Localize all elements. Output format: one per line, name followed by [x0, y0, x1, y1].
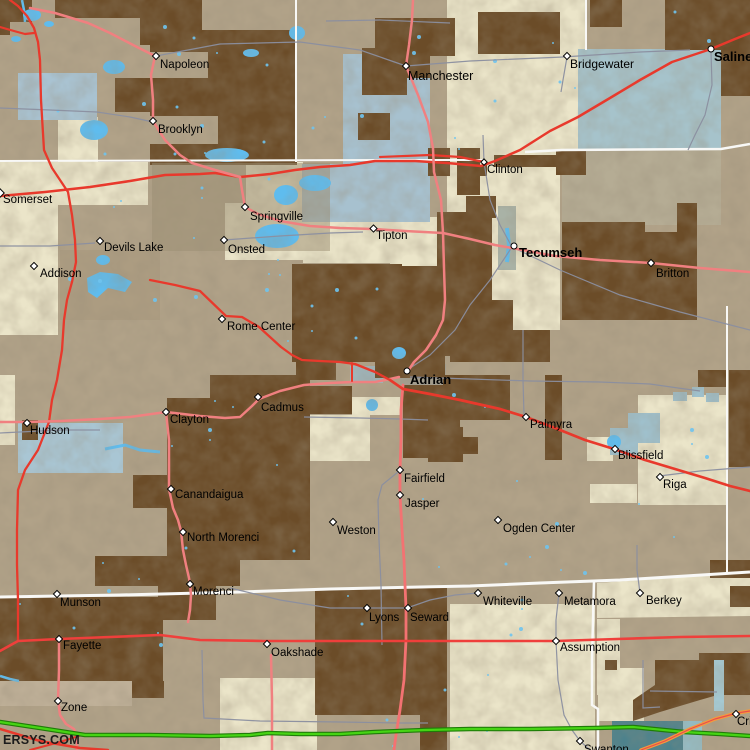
svg-text:Adrian: Adrian — [410, 372, 451, 387]
svg-text:Manchester: Manchester — [408, 69, 473, 83]
svg-text:Britton: Britton — [656, 268, 689, 280]
svg-text:Onsted: Onsted — [228, 244, 265, 256]
svg-text:Addison: Addison — [40, 268, 82, 280]
svg-text:North Morenci: North Morenci — [187, 532, 259, 544]
svg-text:Clayton: Clayton — [170, 414, 209, 426]
svg-text:Whiteville: Whiteville — [483, 596, 532, 608]
svg-text:Clinton: Clinton — [487, 164, 523, 176]
svg-text:Tecumseh: Tecumseh — [519, 245, 582, 260]
svg-text:Bridgewater: Bridgewater — [570, 57, 634, 71]
svg-text:Weston: Weston — [337, 525, 376, 537]
svg-text:Assumption: Assumption — [560, 642, 620, 654]
svg-text:Lyons: Lyons — [369, 612, 400, 624]
svg-text:Napoleon: Napoleon — [160, 59, 209, 71]
svg-text:Saline: Saline — [714, 49, 750, 64]
svg-text:Oakshade: Oakshade — [271, 647, 323, 659]
svg-text:Devils Lake: Devils Lake — [104, 242, 163, 254]
svg-text:Springville: Springville — [250, 211, 303, 223]
svg-text:Tipton: Tipton — [376, 230, 408, 242]
svg-text:Ogden Center: Ogden Center — [503, 523, 575, 535]
svg-text:Somerset: Somerset — [3, 194, 53, 206]
svg-text:Hudson: Hudson — [30, 425, 70, 437]
svg-text:Jasper: Jasper — [405, 498, 440, 510]
svg-text:Fairfield: Fairfield — [404, 473, 445, 485]
svg-text:Crissey: Crissey — [737, 716, 750, 728]
svg-text:Blissfield: Blissfield — [618, 450, 663, 462]
svg-text:Munson: Munson — [60, 597, 101, 609]
svg-text:Fayette: Fayette — [63, 640, 101, 652]
svg-text:Palmyra: Palmyra — [530, 419, 573, 431]
svg-text:Riga: Riga — [663, 479, 687, 491]
svg-text:Morenci: Morenci — [193, 586, 234, 598]
svg-text:Zone: Zone — [61, 702, 87, 714]
svg-text:Seward: Seward — [410, 612, 449, 624]
svg-text:Canandaigua: Canandaigua — [175, 489, 244, 501]
svg-text:ERSYS.COM: ERSYS.COM — [3, 733, 80, 747]
svg-text:Swanton: Swanton — [584, 744, 629, 750]
svg-text:Brooklyn: Brooklyn — [158, 124, 203, 136]
svg-text:Rome Center: Rome Center — [227, 321, 296, 333]
svg-text:Berkey: Berkey — [646, 595, 682, 607]
svg-text:Metamora: Metamora — [564, 596, 616, 608]
svg-text:Cadmus: Cadmus — [261, 402, 304, 414]
